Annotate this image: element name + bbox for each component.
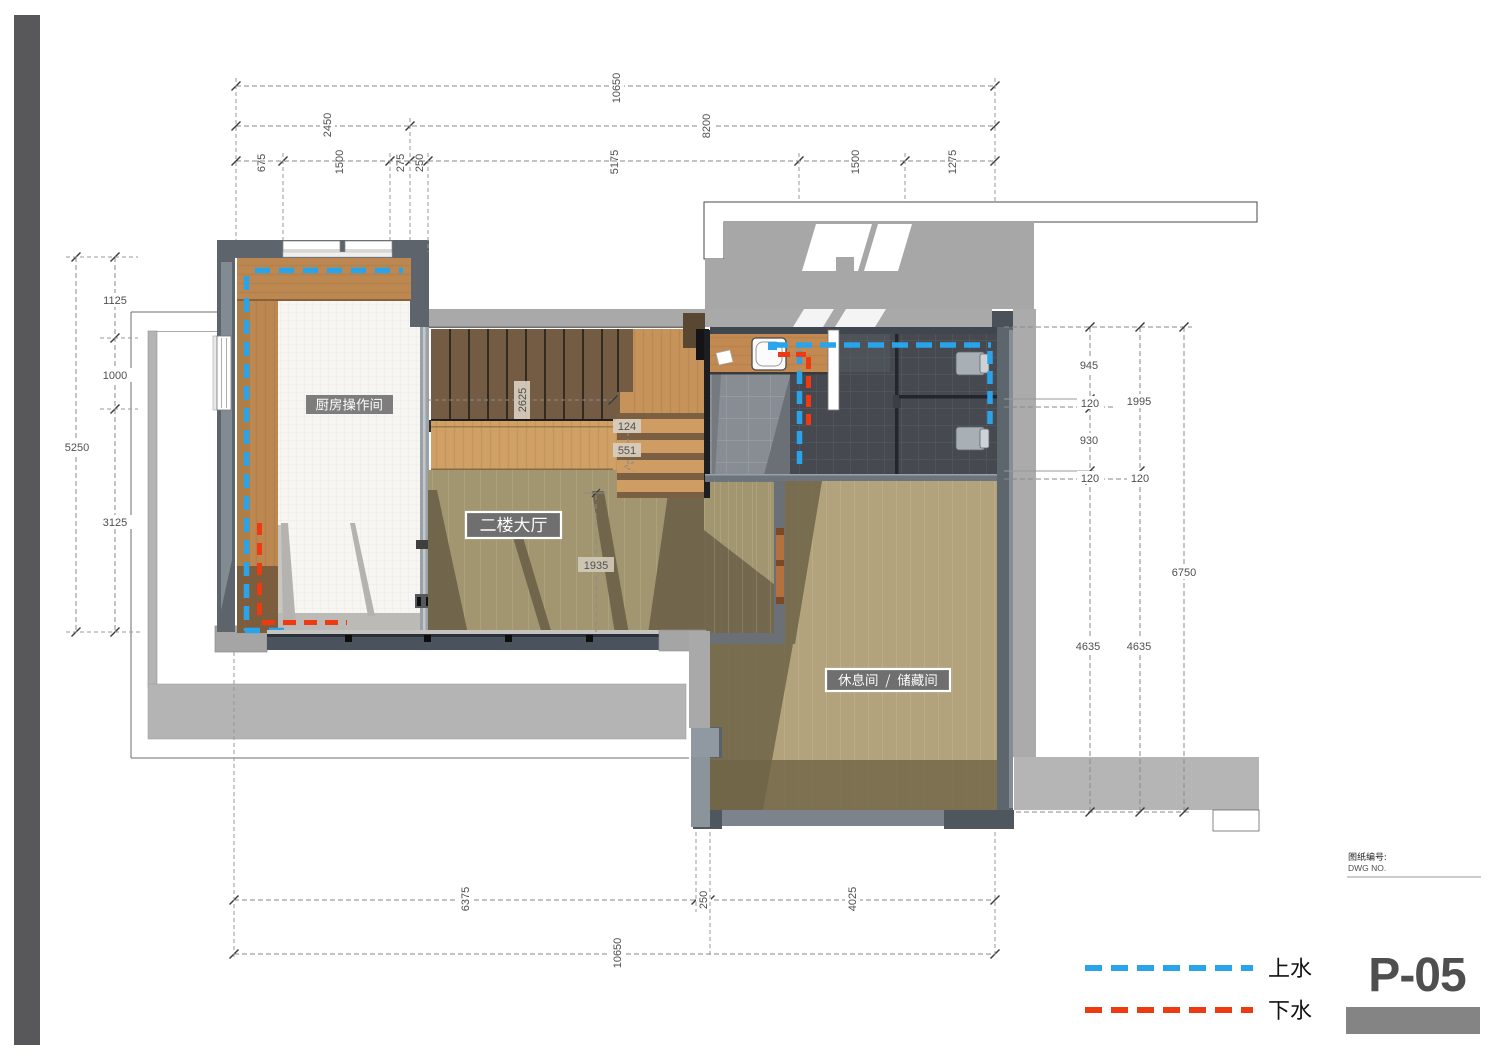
svg-text:1000: 1000	[103, 370, 127, 382]
svg-text:275: 275	[395, 154, 407, 172]
svg-text:4025: 4025	[847, 887, 859, 911]
svg-text:2450: 2450	[322, 113, 334, 137]
svg-text:1275: 1275	[947, 150, 959, 174]
svg-text:1500: 1500	[334, 150, 346, 174]
svg-text:2625: 2625	[517, 388, 529, 412]
svg-text:3125: 3125	[103, 517, 127, 529]
svg-text:4635: 4635	[1127, 641, 1151, 653]
svg-text:10650: 10650	[612, 938, 624, 969]
svg-text:6750: 6750	[1172, 567, 1196, 579]
svg-text:675: 675	[256, 154, 268, 172]
svg-text:250: 250	[698, 891, 710, 909]
svg-text:551: 551	[618, 445, 636, 457]
svg-text:4635: 4635	[1076, 641, 1100, 653]
svg-text:P-05: P-05	[1368, 949, 1466, 1002]
svg-text:5175: 5175	[609, 150, 621, 174]
svg-text:124: 124	[618, 421, 636, 433]
svg-text:8200: 8200	[701, 114, 713, 138]
svg-text:1125: 1125	[103, 295, 127, 307]
svg-text:5250: 5250	[65, 442, 89, 454]
svg-text:DWG NO.: DWG NO.	[1348, 863, 1386, 873]
svg-text:6375: 6375	[460, 887, 472, 911]
svg-text:120: 120	[1081, 398, 1099, 410]
svg-text:1995: 1995	[1127, 396, 1151, 408]
svg-text:120: 120	[1081, 473, 1099, 485]
svg-text:10650: 10650	[611, 73, 623, 104]
svg-text:1500: 1500	[850, 150, 862, 174]
svg-text:930: 930	[1080, 435, 1098, 447]
svg-text:1935: 1935	[584, 560, 608, 572]
svg-text:945: 945	[1080, 360, 1098, 372]
svg-text:250: 250	[414, 154, 426, 172]
svg-text:120: 120	[1131, 473, 1149, 485]
